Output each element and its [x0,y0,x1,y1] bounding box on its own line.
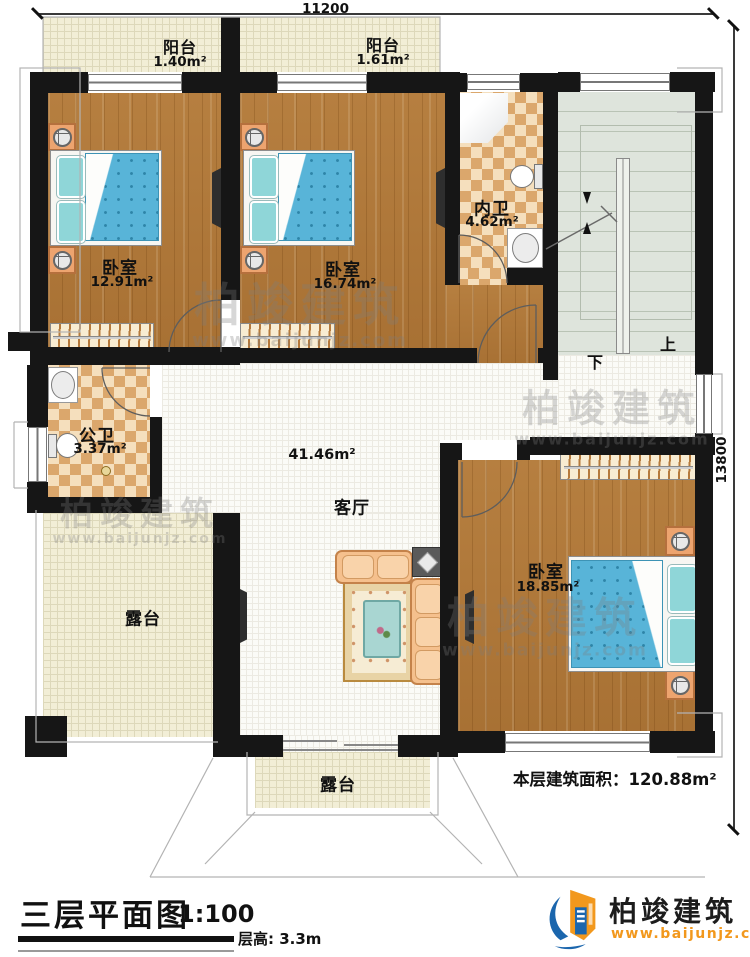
sofa-cushion [415,650,443,680]
sofa-cushion [342,555,374,579]
wall-segment [213,735,283,757]
knob-icon [53,128,72,147]
title-underline-thick [18,936,234,942]
pillow [668,565,697,613]
knob-icon [53,251,72,270]
sofa-cushion [415,584,443,614]
title-underline-thin [18,950,234,952]
logo-window [577,920,585,922]
bed-sheet [632,561,662,667]
nightstand [665,670,695,700]
wall-segment [650,731,715,753]
logo-window [577,915,585,917]
pillow [668,617,697,665]
sliding-door [283,749,398,751]
window [277,74,367,91]
nightstand [665,526,695,556]
window [467,74,520,90]
floor-area-note: 本层建筑面积：120.88m² [513,766,717,790]
knob-icon [671,676,690,695]
room-area-ensuite-bath: 4.62m² [465,214,518,230]
room-label-terrace-bottom: 露台 [320,771,356,796]
nightstand [240,123,268,151]
window-sill [14,422,28,488]
dimension-line-top [37,13,713,15]
wall-pier [8,332,32,351]
wall-segment [213,513,240,757]
wall-segment [30,72,88,93]
hallway-floor [162,363,558,440]
room-label-living: 客厅 [334,494,370,519]
room-area-bedroom2: 16.74m² [314,276,377,292]
wall-segment [445,268,457,285]
wall-segment [221,17,240,93]
stair-down-label: 下 [587,349,603,373]
sofa-cushion [415,617,443,647]
window [505,733,650,752]
mattress [571,560,663,668]
logo-swoosh-2 [555,944,586,949]
sink-icon [51,371,75,399]
floor-plan-canvas: 柏竣建筑 www.baijunjz.com 柏竣建筑 www.baijunjz.… [0,0,750,957]
window-sill [713,374,722,434]
wardrobe-rod [243,336,332,340]
wall-segment [27,497,162,513]
wall-segment [695,72,713,375]
wall-segment [30,72,48,365]
wall-segment [517,440,530,460]
side-table [412,547,442,577]
wall-segment [538,348,558,363]
coffee-table [363,600,401,658]
bedroom2-wardrobe [240,323,335,350]
wardrobe-rod [564,466,694,470]
sofa-loveseat [335,550,413,584]
bedroom3-tv [465,590,474,644]
pillow [57,156,85,198]
wall-segment [221,93,240,300]
wall-segment [445,92,460,285]
bedroom3-bed [568,556,698,672]
bedroom3-wardrobe [560,453,697,480]
wall-segment [240,348,477,363]
window [88,74,182,91]
nightstand [240,246,268,274]
wall-segment [558,72,580,92]
table-decor-icon [374,624,392,640]
mattress [278,153,352,241]
dimension-line-right [733,25,735,830]
knob-icon [671,532,690,551]
wall-segment [440,731,505,753]
wall-segment [695,433,713,753]
logo-window [577,910,585,912]
pillow [250,201,278,243]
knob-icon [245,128,264,147]
logo-icon [545,884,607,950]
dimension-top-label: 11200 [302,1,349,17]
plan-title: 三层平面图 [20,890,190,935]
room-area-bedroom3: 18.85m² [517,579,580,595]
room-area-balcony2: 1.61m² [356,52,409,68]
window [580,73,670,91]
sofa-cushion [377,555,409,579]
pillow [250,156,278,198]
floor-height-label: 层高: 3.3m [238,928,321,949]
bedroom1-bed [50,150,162,246]
sliding-door [344,744,398,746]
corner-column [25,716,67,757]
bedroom1-wardrobe [50,323,154,350]
ensuite-bath-door-floor [457,268,507,285]
plan-scale: 1:100 [178,900,254,928]
window [28,427,47,482]
mattress [85,153,159,241]
sink-icon [512,233,539,263]
room-area-balcony1: 1.40m² [153,54,206,70]
wall-segment [30,347,240,365]
bedroom2-tv [436,168,445,228]
stair-flight-outline [580,125,692,320]
wall-segment [27,365,48,427]
bed-sheet [279,154,309,240]
wall-segment [543,92,558,380]
bedroom2-bed [243,150,355,246]
logo-name: 柏竣建筑 [609,890,737,930]
bedroom1-tv [212,168,221,228]
room-area-bedroom1: 12.91m² [91,274,154,290]
company-logo: 柏竣建筑 www.baijunjz.com [545,882,745,952]
room-area-public-bath: 3.37m² [73,441,126,457]
bed-sheet [86,154,116,240]
window [696,374,712,434]
wall-segment [440,443,458,757]
wall-segment [530,437,715,455]
wall-segment [440,443,462,460]
stair-railing [616,158,630,354]
nightstand [48,246,76,274]
lamp-icon [416,551,437,572]
wall-segment [445,73,467,92]
wall-segment [240,72,277,93]
room-label-terrace-left: 露台 [125,605,161,630]
toilet-icon [510,165,534,188]
knob-icon [245,251,264,270]
logo-swoosh [550,897,569,941]
sliding-door [283,740,337,742]
logo-window [589,903,593,924]
wardrobe-rod [53,336,151,340]
room-area-living: 41.46m² [288,447,355,463]
floor-drain-icon [101,466,111,476]
pillow [57,201,85,243]
toilet-tank [534,164,543,189]
logo-website: www.baijunjz.com [611,926,750,942]
nightstand [48,123,76,151]
stair-up-label: 上 [660,331,676,355]
stair-landing-floor [558,355,697,440]
dimension-right-label: 13800 [714,437,730,484]
wall-segment [520,73,558,92]
